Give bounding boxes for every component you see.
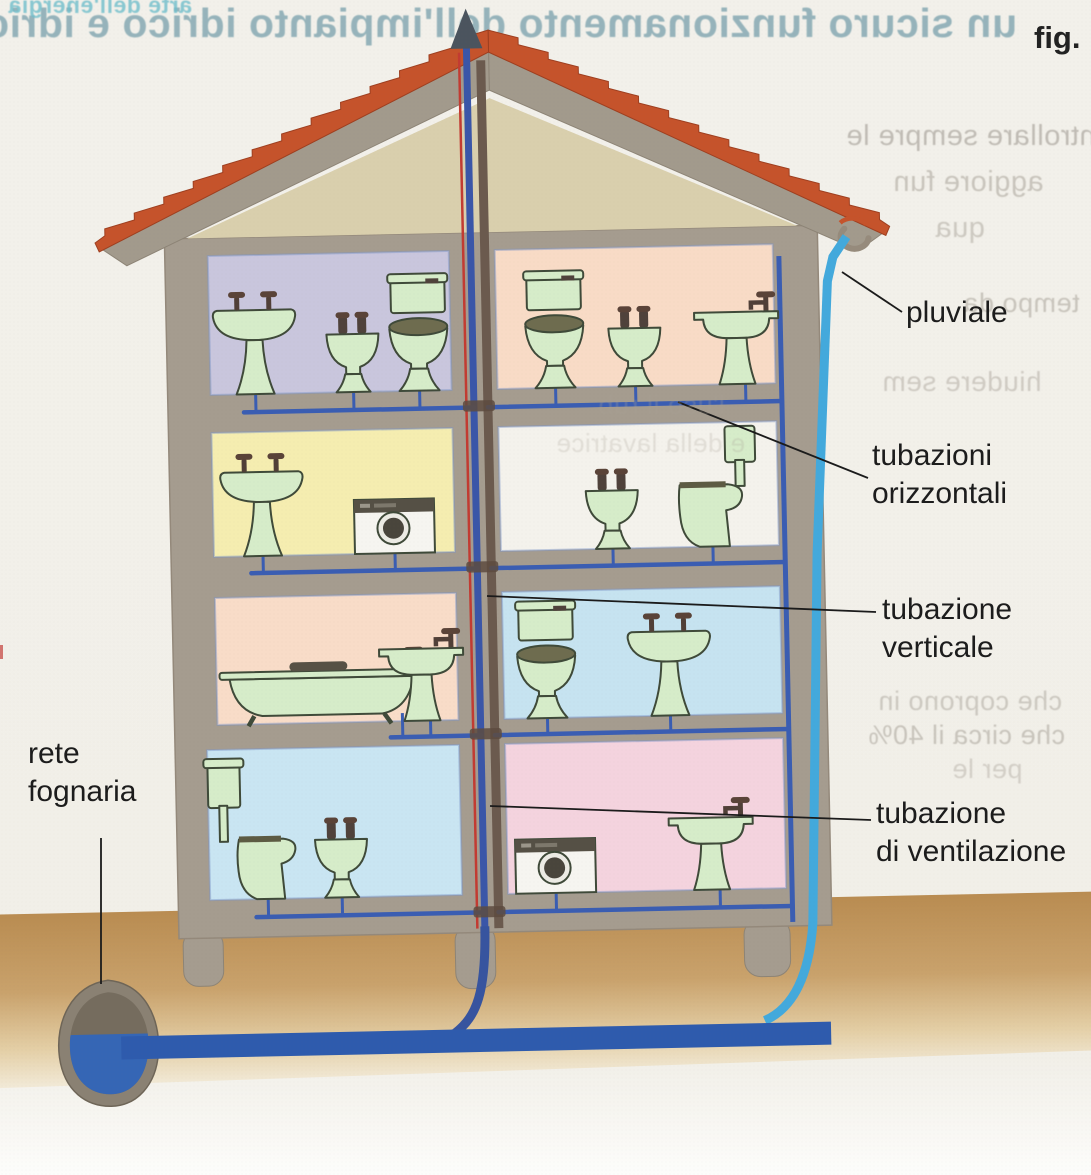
label-tubazioni-orizzontali: tubazioni orizzontali	[872, 437, 1007, 513]
label-vent-line2: di ventilazione	[876, 833, 1066, 871]
vent-arrow-icon	[450, 8, 483, 49]
washing-machine-icon	[354, 498, 435, 554]
label-pluviale: pluviale	[906, 294, 1008, 332]
label-horizontal-line1: tubazioni	[872, 437, 1007, 475]
main-sewer-pipe	[121, 1033, 831, 1048]
label-tubazione-verticale: tubazione verticale	[882, 591, 1012, 667]
fixture-drain-drop	[402, 713, 403, 737]
bleedthrough-text: l'uso il rub	[598, 390, 725, 421]
label-sewer-line2: fognaria	[28, 773, 136, 811]
label-horizontal-line2: orizzontali	[872, 475, 1007, 513]
figure-tag: fig.	[1034, 20, 1081, 56]
label-rete-fognaria: rete fognaria	[28, 735, 136, 811]
scan-edge-artifact	[0, 645, 3, 659]
label-sewer-line1: rete	[28, 735, 136, 773]
building-plumbing-cross-section	[0, 0, 1091, 1175]
scanned-textbook-page: un sicuro funzionamento dell'impianto id…	[0, 0, 1091, 1175]
washing-machine-icon	[515, 838, 596, 894]
label-vertical-line2: verticale	[882, 629, 1012, 667]
label-pluviale-text: pluviale	[906, 294, 1008, 332]
bleedthrough-text: e della lavatrice	[556, 428, 745, 459]
label-vent-line1: tubazione	[876, 795, 1066, 833]
label-vertical-line1: tubazione	[882, 591, 1012, 629]
label-tubazione-ventilazione: tubazione di ventilazione	[876, 795, 1066, 871]
leader-pluviale	[842, 272, 902, 312]
